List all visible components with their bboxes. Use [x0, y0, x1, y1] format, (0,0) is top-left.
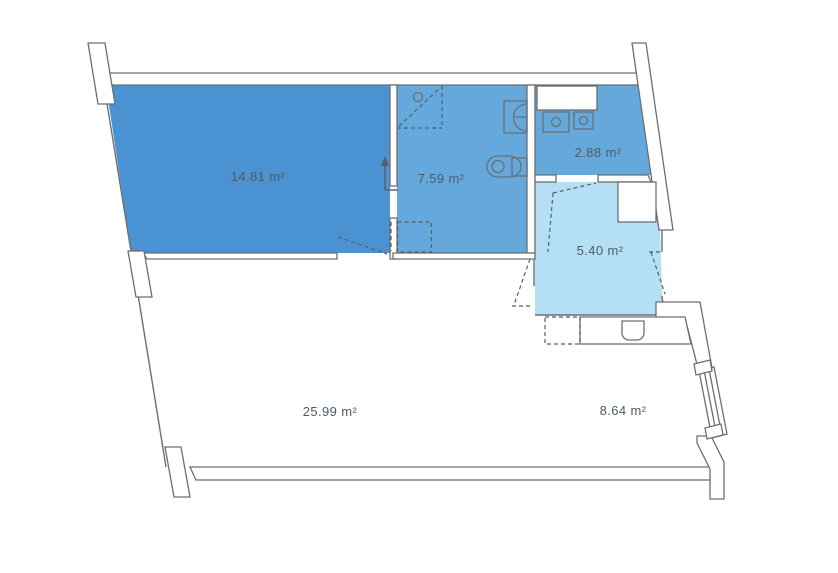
label-room-7-59: 7.59 m² [418, 171, 465, 186]
window-pier-bottom-left [165, 447, 190, 497]
floor-plan-svg: 14.81 m² 7.59 m² 2.88 m² 5.40 m² 25.99 m… [0, 0, 838, 573]
wall-bathroom-hallway [527, 85, 535, 253]
door-swing-hall-living-leaf [514, 259, 530, 305]
wall-utility-hallway-left [535, 175, 556, 182]
kitchen-sink-icon [622, 321, 644, 340]
wall-bedroom-bottom [143, 253, 337, 259]
closet [618, 182, 656, 222]
floor-plan-canvas: 14.81 m² 7.59 m² 2.88 m² 5.40 m² 25.99 m… [0, 0, 838, 573]
wall-top [102, 73, 648, 85]
wall-bottom [190, 467, 714, 480]
utility-counter [537, 86, 597, 110]
wall-bathroom-bottom [393, 253, 535, 259]
window-right-tie-bottom [705, 424, 723, 439]
label-room-14-81: 14.81 m² [231, 169, 286, 184]
label-room-2-88: 2.88 m² [575, 145, 622, 160]
wall-utility-hallway-right [598, 175, 651, 182]
appliance-space [545, 317, 580, 344]
label-room-25-99: 25.99 m² [303, 404, 358, 419]
wall-bedroom-bathroom-upper [390, 85, 397, 186]
label-room-5-40: 5.40 m² [577, 243, 624, 258]
label-room-8-64: 8.64 m² [600, 403, 647, 418]
